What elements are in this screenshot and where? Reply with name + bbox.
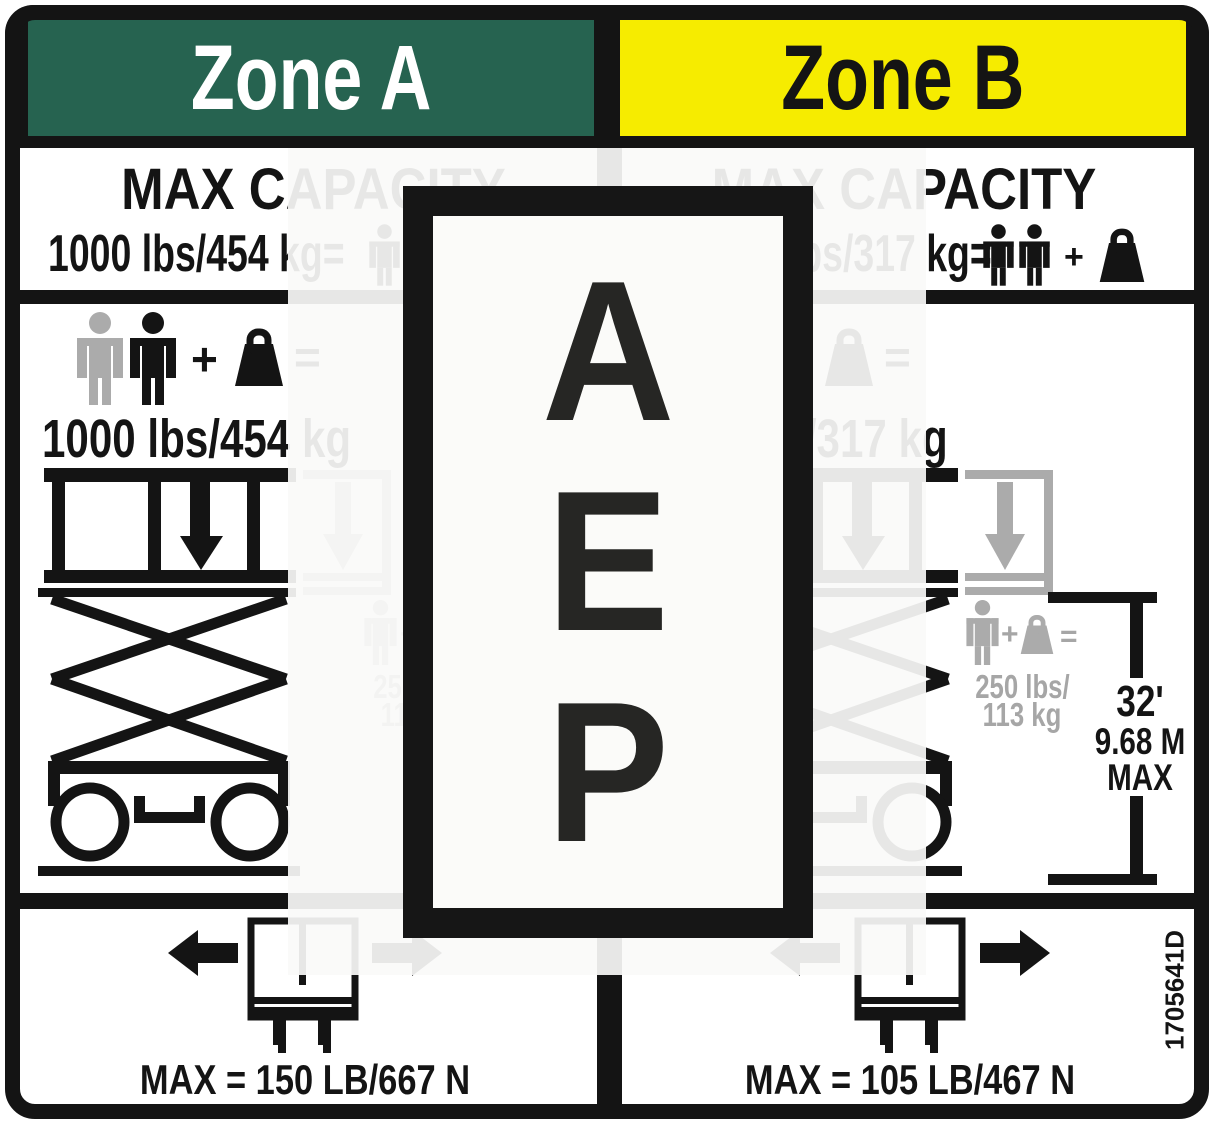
weight-icon bbox=[1096, 228, 1148, 284]
height-dim-line bbox=[1130, 603, 1143, 678]
plus-sign: + bbox=[1064, 240, 1084, 274]
height-dim-line bbox=[1130, 796, 1143, 874]
zone-b-deck-max: MAX = 105 LB/467 N bbox=[705, 1058, 1115, 1102]
weight-icon bbox=[231, 328, 287, 388]
zone-a-title: Zone A bbox=[191, 32, 432, 124]
zone-b-banner: Zone B bbox=[620, 20, 1186, 136]
watermark-letter-e: E bbox=[547, 487, 670, 637]
zone-b-title: Zone B bbox=[781, 32, 1024, 124]
gray-weight-icon bbox=[1018, 614, 1056, 656]
capacity-label: Zone A Zone B MAX CAPACITY 1000 lbs/454 … bbox=[0, 0, 1214, 1124]
zone-b-height-max: MAX bbox=[1088, 760, 1192, 796]
zone-b-height-ft: 32' bbox=[1088, 682, 1192, 722]
zone-a-deck-max: MAX = 150 LB/667 N bbox=[100, 1058, 510, 1102]
arrow-right-icon bbox=[980, 930, 1050, 976]
part-number: 1705641D bbox=[1160, 930, 1191, 1050]
extension-deck-icon bbox=[965, 468, 1053, 600]
gray-person-icon bbox=[75, 312, 125, 405]
height-dim-bottom-line bbox=[1048, 874, 1157, 885]
arrow-left-icon bbox=[168, 930, 238, 976]
scissor-lift-icon bbox=[38, 466, 300, 880]
gray-person-icon bbox=[965, 600, 1000, 665]
zone-a-banner: Zone A bbox=[28, 20, 594, 136]
zone-b-ext-capacity-kg: 113 kg bbox=[975, 698, 1069, 731]
plus-sign: + bbox=[1001, 620, 1019, 650]
watermark-letter-a: A bbox=[542, 277, 675, 427]
watermark-letter-p: P bbox=[547, 698, 670, 848]
aep-watermark-box: A E P bbox=[403, 186, 813, 938]
height-dim-top-line bbox=[1048, 592, 1157, 603]
person-icon bbox=[982, 224, 1015, 286]
zone-b-height-m: 9.68 M bbox=[1088, 724, 1192, 760]
plus-sign: + bbox=[191, 336, 218, 382]
person-icon bbox=[1018, 224, 1051, 286]
equals-sign: = bbox=[1060, 622, 1078, 652]
person-icon bbox=[128, 312, 178, 405]
